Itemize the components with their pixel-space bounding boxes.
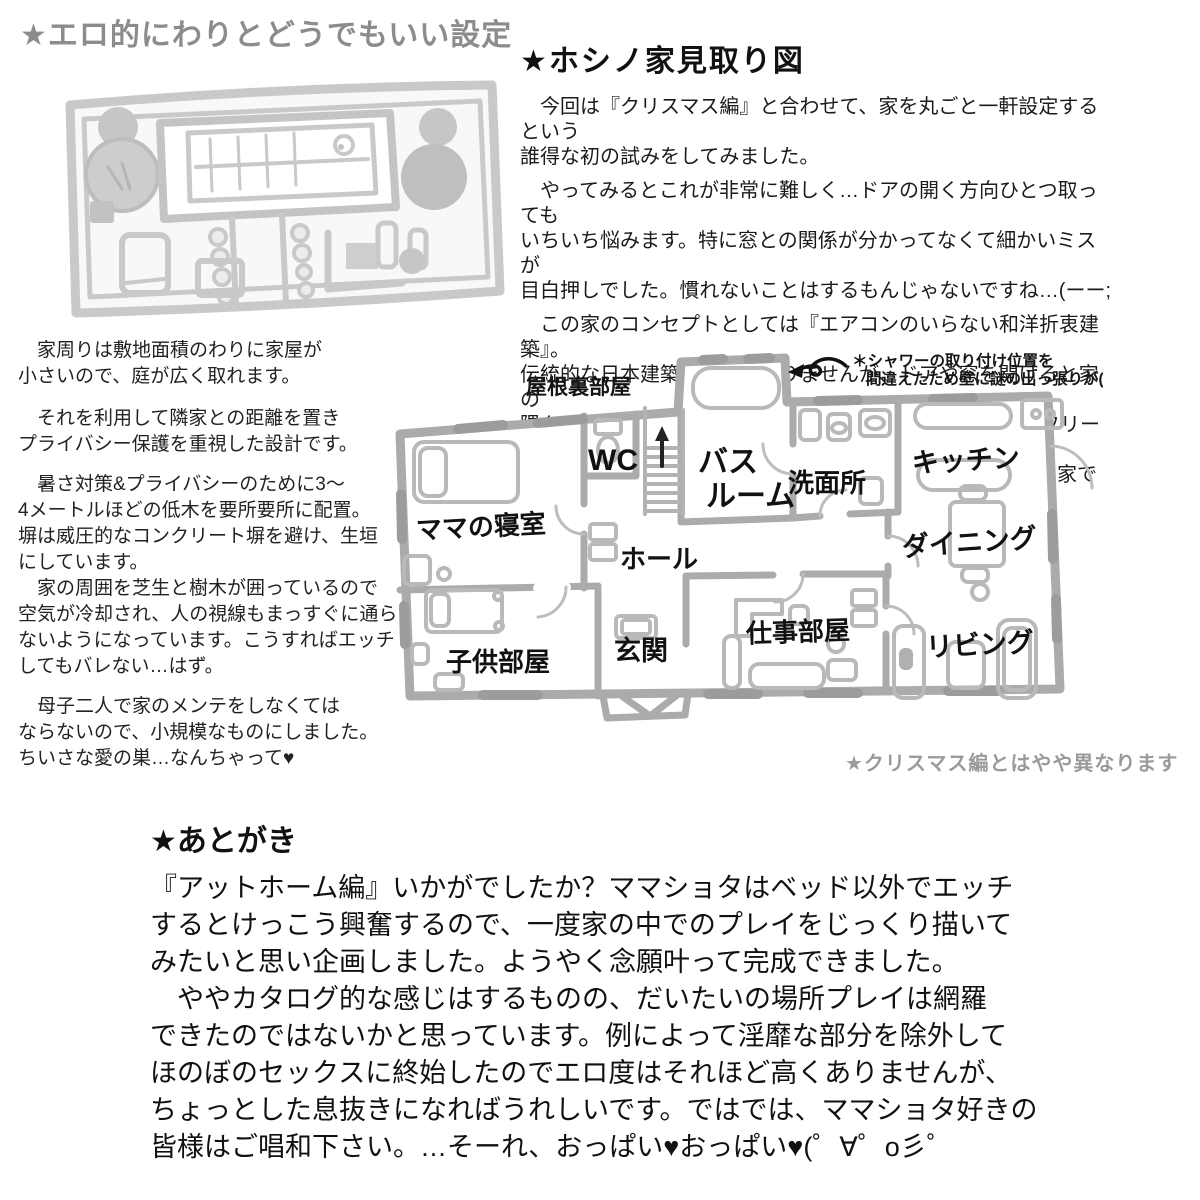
sketch-tree-left-big [86, 139, 158, 211]
room-label-entrance: 玄関 [614, 635, 668, 666]
sketch-bush [399, 248, 425, 274]
page-title-settings: ★エロ的にわりとどうでもいい設定 [20, 10, 512, 54]
sketch-tree-right-big [401, 144, 467, 210]
room-label-wc: WC [588, 444, 638, 477]
curved-arrow-icon [788, 359, 846, 378]
room-label-bathroom-line1: バス [698, 446, 758, 479]
shower-annotation-line2: 間違えたため壁に謎の出っ張りが(汗 [866, 369, 1103, 388]
site-paragraph-5: 母子二人で家のメンテをしなくては ならないので、小規模なものにしました。 ちいさ… [18, 694, 400, 772]
site-paragraph-2: それを利用して隣家との距離を置き プライバシー保護を重視した設計です。 [18, 406, 400, 458]
afterword-body: 『アットホーム編』いかがでしたか？ママショタはベッド以外でエッチ するとけっこう… [150, 870, 1075, 1166]
site-paragraph-4: 家の周囲を芝生と樹木が囲っているので 空気が冷却され、人の視線もまっすぐに通ら … [18, 576, 400, 680]
site-paragraph-3: 暑さ対策&プライバシーのために3〜 4メートルほどの低木を要所要所に配置。 塀は… [18, 472, 400, 576]
scanned-doujin-settings-page: { "title_top_left": "★エロ的にわりとどうでもいい設定", … [0, 0, 1200, 1200]
garden-site-sketch-svg [60, 75, 505, 320]
sketch-house-dot [338, 144, 344, 150]
room-label-bathroom-line2: ルーム [706, 480, 795, 513]
sketch-tree-top-right [419, 108, 457, 146]
room-label-washroom: 洗面所 [788, 468, 866, 498]
intro-paragraph-1: 今回は『クリスマス編』と合わせて、家を丸ごと一軒設定するという 誰得な初の試みを… [520, 95, 1112, 170]
site-description-column: 家周りは敷地面積のわりに家屋が 小さいので、庭が広く取れます。 それを利用して隣… [18, 338, 400, 772]
floorplan-title: ★ホシノ家見取り図 [520, 36, 1112, 80]
afterword-section: ★あとがき 『アットホーム編』いかがでしたか？ママショタはベッド以外でエッチ す… [150, 816, 1075, 1166]
afterword-title: ★あとがき [150, 816, 1075, 860]
room-label-kids-room: 子供部屋 [446, 647, 550, 677]
attic-label: 屋根裏部屋 [526, 375, 631, 399]
house-floorplan: 屋根裏部屋 ＊シャワーの取り付け位置を 間違えたため壁に謎の出っ張りが(汗 WC… [388, 344, 1103, 761]
room-label-living: リビング [925, 626, 1034, 663]
room-label-hall: ホール [620, 544, 698, 574]
plan-difference-note: ★クリスマス編とはやや異なります [845, 747, 1178, 776]
room-label-work-room: 仕事部屋 [744, 615, 850, 649]
sketch-gate-box [90, 201, 114, 223]
site-paragraph-1: 家周りは敷地面積のわりに家屋が 小さいので、庭が広く取れます。 [18, 338, 400, 390]
house-floorplan-svg: 屋根裏部屋 ＊シャワーの取り付け位置を 間違えたため壁に謎の出っ張りが(汗 WC… [388, 344, 1103, 756]
garden-site-sketch [60, 75, 505, 325]
room-label-kitchen: キッチン [911, 443, 1020, 479]
shower-annotation-line1: ＊シャワーの取り付け位置を [852, 351, 1054, 370]
sketch-chair [346, 243, 378, 269]
kids-door-gap [538, 587, 566, 588]
intro-paragraph-2: やってみるとこれが非常に難しく…ドアの開く方向ひとつ取っても いちいち悩みます。… [520, 179, 1112, 304]
